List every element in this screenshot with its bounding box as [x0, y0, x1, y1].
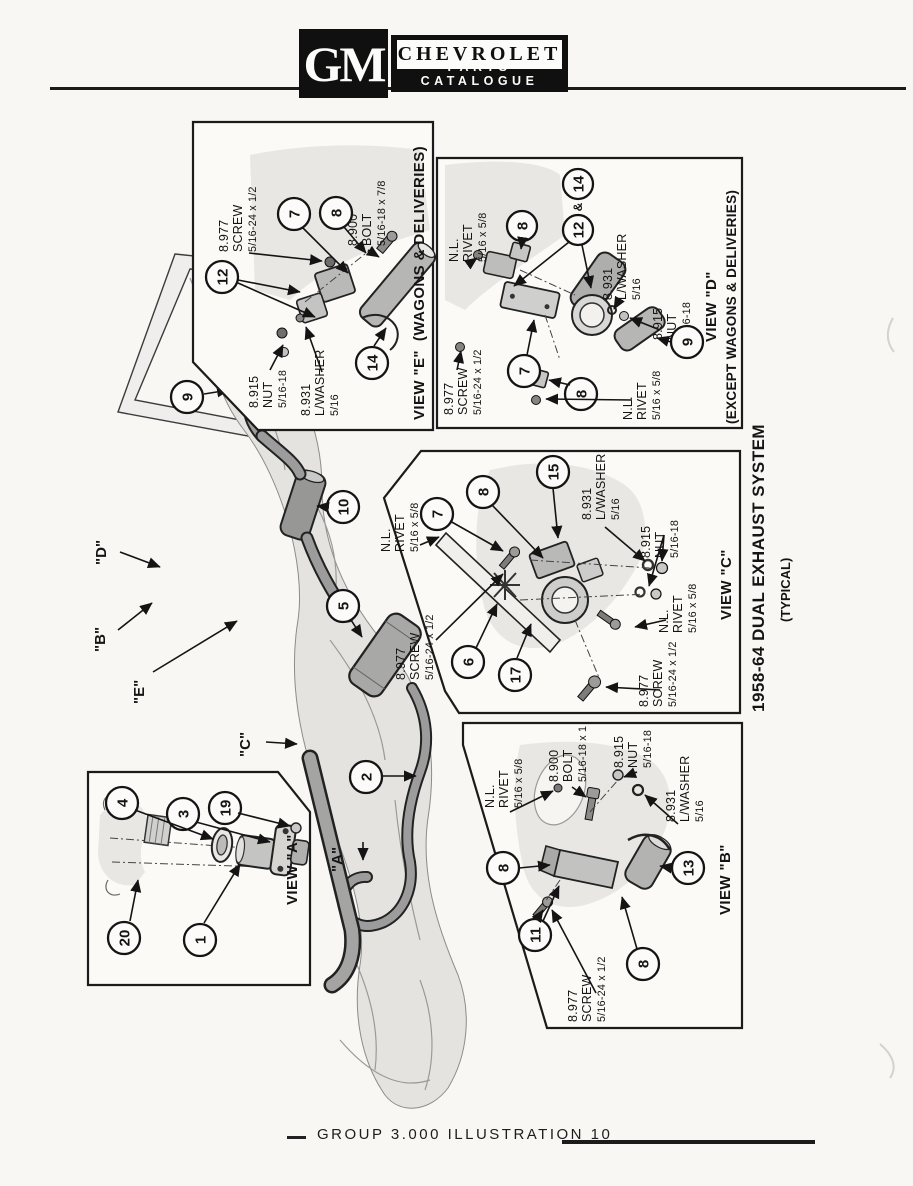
svg-text:VIEW "C": VIEW "C" [718, 549, 735, 620]
svg-text:8: 8 [329, 209, 346, 217]
svg-text:14: 14 [365, 354, 382, 371]
svg-text:5/16: 5/16 [631, 278, 643, 300]
svg-text:5/16-18: 5/16-18 [277, 370, 289, 408]
scan-curl-mark-bottom [880, 1044, 894, 1078]
svg-text:(EXCEPT WAGONS & DELIVERIES): (EXCEPT WAGONS & DELIVERIES) [724, 190, 739, 424]
view-d-callout-7: 7 [508, 355, 540, 387]
view-c-callout-15: 15 [537, 456, 569, 488]
svg-text:19: 19 [218, 800, 235, 817]
callout-9: 9 [171, 381, 203, 413]
svg-text:2: 2 [359, 773, 376, 781]
svg-text:8.931: 8.931 [580, 488, 594, 520]
svg-text:8.977: 8.977 [566, 990, 580, 1022]
svg-text:NUT: NUT [626, 742, 640, 768]
svg-text:8.915: 8.915 [639, 526, 653, 558]
view-e-callout-8: 8 [320, 197, 352, 229]
view-b-callout-8b: 8 [627, 948, 659, 980]
svg-text:N.L.: N.L. [379, 528, 393, 552]
svg-text:5/16 x 5/8: 5/16 x 5/8 [513, 759, 525, 808]
view-d-callout-14: 14 [563, 169, 593, 199]
svg-text:8: 8 [496, 864, 513, 872]
view-c-callout-6: 6 [452, 646, 484, 678]
svg-text:SCREW: SCREW [231, 204, 245, 252]
scan-curl-mark-top [888, 318, 894, 352]
svg-text:8.915: 8.915 [247, 376, 261, 408]
svg-text:5/16-24 x 1/2: 5/16-24 x 1/2 [667, 641, 679, 707]
page-title-typical: (TYPICAL) [778, 558, 793, 622]
page-title-vertical: 1958-64 DUAL EXHAUST SYSTEM [749, 424, 768, 712]
svg-text:5/16-24 x 1/2: 5/16-24 x 1/2 [247, 186, 259, 252]
svg-text:10: 10 [336, 499, 353, 516]
svg-text:RIVET: RIVET [497, 770, 511, 808]
svg-text:5/16-24 x 1/2: 5/16-24 x 1/2 [472, 349, 484, 415]
view-e-callout-12: 12 [206, 261, 238, 293]
svg-text:7: 7 [287, 210, 304, 218]
svg-text:5/16-18: 5/16-18 [642, 730, 654, 768]
svg-text:BOLT: BOLT [561, 749, 575, 782]
view-d-callout-8a: 8 [507, 211, 537, 241]
svg-text:8: 8 [574, 390, 591, 398]
svg-text:SCREW: SCREW [408, 632, 422, 680]
svg-text:5/16: 5/16 [329, 394, 341, 416]
svg-text:NUT: NUT [653, 532, 667, 558]
main-letter-b: "B" [92, 603, 152, 652]
svg-text:"D": "D" [93, 540, 110, 565]
view-d-subtitle: (EXCEPT WAGONS & DELIVERIES) [724, 190, 739, 424]
main-letter-e: "E" [131, 621, 237, 704]
footer-right-rule [562, 1140, 815, 1144]
svg-text:RIVET: RIVET [461, 224, 475, 262]
svg-text:4: 4 [115, 798, 132, 807]
svg-text:8: 8 [476, 488, 493, 496]
svg-text:1958-64 DUAL EXHAUST SYSTEM: 1958-64 DUAL EXHAUST SYSTEM [749, 424, 768, 712]
svg-text:N.L.: N.L. [483, 784, 497, 808]
svg-text:5/16 x 5/8: 5/16 x 5/8 [651, 371, 663, 420]
svg-text:5/16: 5/16 [694, 800, 706, 822]
svg-text:7: 7 [430, 510, 447, 518]
callout-5: 5 [327, 590, 359, 622]
svg-text:RIVET: RIVET [671, 595, 685, 633]
svg-text:SCREW: SCREW [456, 367, 470, 415]
svg-text:8: 8 [636, 960, 653, 968]
svg-text:13: 13 [681, 860, 698, 877]
svg-text:17: 17 [508, 667, 525, 684]
view-a-callout-20: 20 [108, 922, 140, 954]
view-a-callout-19: 19 [209, 792, 241, 824]
svg-text:5/16-24 x 1/2: 5/16-24 x 1/2 [424, 614, 436, 680]
svg-text:NUT: NUT [261, 382, 275, 408]
svg-text:SCREW: SCREW [651, 659, 665, 707]
svg-text:SCREW: SCREW [580, 974, 594, 1022]
view-a-callout-4: 4 [106, 787, 138, 819]
svg-text:11: 11 [528, 927, 545, 943]
view-b-callout-11: 11 [519, 919, 551, 951]
view-d-callout-12: 12 [563, 215, 593, 245]
footer-left-dash [287, 1136, 306, 1139]
svg-text:"A": "A" [329, 847, 346, 872]
svg-text:8.900: 8.900 [547, 750, 561, 782]
svg-text:VIEW "B": VIEW "B" [717, 844, 734, 915]
svg-text:RIVET: RIVET [635, 382, 649, 420]
svg-text:7: 7 [517, 367, 534, 375]
svg-text:BOLT: BOLT [360, 213, 374, 246]
view-a-callout-3: 3 [167, 798, 199, 830]
svg-text:8.931: 8.931 [601, 268, 615, 300]
svg-text:"B": "B" [92, 627, 109, 652]
svg-text:8: 8 [515, 222, 532, 230]
view-d-amp: & [571, 202, 585, 211]
view-e-callout-7: 7 [278, 198, 310, 230]
svg-text:9: 9 [180, 393, 197, 401]
svg-text:VIEW "A": VIEW "A" [284, 834, 301, 905]
svg-text:5/16-18 x 1: 5/16-18 x 1 [577, 726, 589, 782]
svg-text:8.931: 8.931 [299, 384, 313, 416]
svg-text:20: 20 [117, 930, 134, 947]
svg-text:L/WASHER: L/WASHER [594, 454, 608, 520]
svg-text:N.L.: N.L. [447, 238, 461, 262]
svg-text:5/16 x 5/8: 5/16 x 5/8 [477, 213, 489, 262]
svg-text:L/WASHER: L/WASHER [678, 756, 692, 822]
svg-text:12: 12 [215, 269, 232, 286]
view-c-callout-7: 7 [421, 498, 453, 530]
svg-text:8.977: 8.977 [637, 675, 651, 707]
catalogue-page: GM CHEVROLET PARTS CATALOGUE [0, 0, 913, 1186]
svg-text:5/16-18: 5/16-18 [669, 520, 681, 558]
view-d-callout-8b: 8 [565, 378, 597, 410]
svg-text:8.915: 8.915 [612, 736, 626, 768]
svg-text:15: 15 [546, 464, 563, 481]
svg-text:12: 12 [571, 222, 588, 239]
svg-text:5/16-24 x 1/2: 5/16-24 x 1/2 [596, 956, 608, 1022]
svg-text:5: 5 [336, 602, 353, 610]
svg-text:3: 3 [176, 810, 193, 818]
svg-text:14: 14 [571, 175, 588, 192]
svg-text:6: 6 [461, 658, 478, 666]
view-e-title: VIEW "E"(WAGONS & DELIVERIES) [411, 146, 428, 420]
svg-text:VIEW "D": VIEW "D" [703, 271, 720, 342]
callout-2: 2 [350, 761, 382, 793]
svg-text:5/16: 5/16 [610, 498, 622, 520]
svg-text:"E": "E" [131, 680, 148, 704]
svg-text:(TYPICAL): (TYPICAL) [778, 558, 793, 622]
view-b-callout-13: 13 [672, 852, 704, 884]
svg-text:L/WASHER: L/WASHER [615, 234, 629, 300]
view-c-callout-17: 17 [499, 659, 531, 691]
svg-text:8.977: 8.977 [442, 383, 456, 415]
svg-text:5/16 x 5/8: 5/16 x 5/8 [687, 584, 699, 633]
view-d-callout-9: 9 [671, 326, 703, 358]
illustration-canvas: "D" "B" "E" "C" "A" 9 10 5 2 [0, 0, 913, 1186]
callout-10: 10 [327, 491, 359, 523]
svg-text:1: 1 [193, 936, 210, 944]
view-c-callout-8: 8 [467, 476, 499, 508]
view-b-callout-8a: 8 [487, 852, 519, 884]
view-d-title: VIEW "D" [703, 271, 720, 342]
svg-text:L/WASHER: L/WASHER [313, 350, 327, 416]
svg-text:&: & [571, 202, 585, 211]
view-b-title: VIEW "B" [717, 844, 734, 915]
svg-text:"C": "C" [237, 732, 254, 757]
svg-text:RIVET: RIVET [393, 514, 407, 552]
svg-text:5/16-18 x 7/8: 5/16-18 x 7/8 [376, 180, 388, 246]
svg-text:5/16 x 5/8: 5/16 x 5/8 [409, 503, 421, 552]
svg-text:8.977: 8.977 [217, 220, 231, 252]
svg-text:9: 9 [680, 338, 697, 346]
main-letter-d: "D" [93, 540, 160, 567]
view-a-callout-1: 1 [184, 924, 216, 956]
view-e-callout-14: 14 [356, 347, 388, 379]
view-a-title: VIEW "A" [284, 834, 301, 905]
svg-text:8.977: 8.977 [394, 648, 408, 680]
svg-text:8.915: 8.915 [651, 308, 665, 340]
main-letter-c: "C" [237, 732, 297, 757]
view-c-title: VIEW "C" [718, 549, 735, 620]
svg-text:VIEW "E"(WAGONS & DELIVERIES): VIEW "E"(WAGONS & DELIVERIES) [411, 146, 428, 420]
